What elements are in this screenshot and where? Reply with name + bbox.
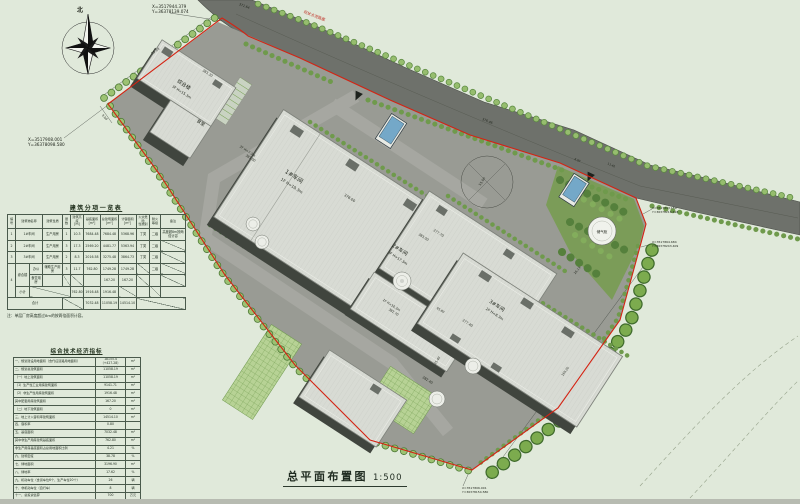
table-cell: 生产用房: [43, 252, 63, 264]
table-cell: 2: [63, 252, 71, 264]
building-list-panel: 建筑分项一览表 8,14,13,20,8,13,17,18,18,13,11,2…: [7, 203, 185, 319]
table-cell: [126, 421, 141, 429]
building-list-note: 注：单层厂房高度超过8m的按两倍面积计容。: [7, 313, 185, 319]
table-cell: 14514.10: [119, 298, 137, 310]
table-cell: 生产用房: [43, 240, 63, 252]
table-cell: 14514.10: [96, 414, 126, 422]
table-cell: [137, 286, 150, 298]
table-cell: 5368.96: [119, 229, 137, 241]
table-cell: m²: [126, 406, 141, 414]
table-header-cell: 基底面积 [m²]: [84, 215, 101, 229]
table-cell: 1749.28: [101, 263, 119, 275]
table-cell: 合计: [8, 298, 63, 310]
table-cell: 4481.77: [101, 240, 119, 252]
bottom-strip: [0, 499, 800, 504]
table-cell: 0: [96, 406, 126, 414]
table-cell: 非生产用房基底面积占总用地面积比例: [14, 445, 96, 453]
table-cell: 1: [63, 229, 71, 241]
table-cell: 17.62: [96, 469, 126, 477]
silo: [246, 217, 260, 231]
table-cell: 3196.90: [96, 461, 126, 469]
table-cell: 167.20: [101, 275, 119, 287]
table-cell: 高度超8m按两倍计容: [161, 229, 186, 241]
table-cell: 762.80: [96, 437, 126, 445]
table-cell: m²: [126, 398, 141, 406]
plan-annotation: Y=36378243.409: [652, 244, 678, 248]
table-cell: m²: [126, 382, 141, 390]
table-header-cell: 层数: [63, 215, 71, 229]
table-cell: [161, 275, 186, 287]
table-cell: 762.80: [84, 263, 101, 275]
table-cell: m²: [126, 437, 141, 445]
table-cell: m²: [126, 366, 141, 374]
table-cell: 丁类: [137, 252, 150, 264]
table-cell: 2569.20: [84, 240, 101, 252]
table-cell: 二、规划总建筑面积: [14, 366, 96, 374]
table-cell: 辆: [126, 477, 141, 485]
table-cell: 七、绿地面积: [14, 461, 96, 469]
table-cell: 3: [63, 263, 71, 275]
table-cell: 11058.19: [96, 366, 126, 374]
table-cell: %: [126, 445, 141, 453]
table-cell: 四、容积率: [14, 421, 96, 429]
drawing-title: 总平面布置图 1:500: [283, 468, 407, 487]
table-cell: 762.80: [71, 286, 84, 298]
table-cell: 丁类: [137, 229, 150, 241]
table-cell: m²: [126, 374, 141, 382]
table-cell: 18155.4（+427.28）: [96, 358, 126, 367]
drawing-scale: 1:500: [373, 473, 403, 483]
table-cell: 3#车间: [16, 252, 43, 264]
table-cell: 综合楼: [16, 263, 30, 286]
plan-annotation: Y=36378139.074: [151, 9, 189, 14]
table-cell: 六、建筑密度: [14, 453, 96, 461]
table-cell: [150, 275, 161, 287]
table-cell: 11058.19: [101, 298, 119, 310]
table-cell: （一）地上建筑面积: [14, 374, 96, 382]
table-cell: 10.3: [71, 229, 84, 241]
table-cell: 3864.73: [119, 252, 137, 264]
table-cell: 1916.48: [84, 286, 101, 298]
table-cell: 丁类: [137, 240, 150, 252]
table-cell: 7032.48: [96, 429, 126, 437]
table-cell: m²: [126, 414, 141, 422]
table-cell: 二级: [150, 240, 161, 252]
table-cell: 11.7: [71, 263, 84, 275]
table-cell: 7684.48: [101, 229, 119, 241]
table-cell: m²: [126, 358, 141, 367]
table-cell: （2）非生产性用房建筑面积: [14, 390, 96, 398]
indicators-title: 综合技术经济指标: [13, 347, 140, 355]
table-cell: [84, 275, 101, 287]
table-cell: 二级: [150, 263, 161, 275]
table-cell: 4.21: [96, 445, 126, 453]
plan-annotation: Y=36378098.580: [27, 142, 65, 147]
table-cell: [43, 275, 63, 287]
table-cell: [161, 240, 186, 252]
table-cell: （二）地下建筑面积: [14, 406, 96, 414]
table-cell: 食堂用房: [30, 275, 43, 287]
table-cell: [119, 286, 137, 298]
table-cell: 3: [8, 252, 16, 264]
table-cell: 9141.71: [96, 382, 126, 390]
table-cell: 8: [96, 485, 126, 493]
building-list-table: 8,14,13,20,8,13,17,18,18,13,11,25 编号建筑物名…: [7, 214, 185, 310]
table-cell: [71, 275, 84, 287]
table-cell: 2016.58: [84, 252, 101, 264]
plan-annotation: 北: [77, 6, 83, 14]
indicators-table: 82,30,15 一、规划建设用地面积（含代征道路用地面积）18155.4（+4…: [13, 357, 140, 504]
table-cell: 17.3: [71, 240, 84, 252]
table-cell: %: [126, 453, 141, 461]
table-cell: %: [126, 469, 141, 477]
table-cell: 3275.48: [101, 252, 119, 264]
table-cell: 7684.48: [84, 229, 101, 241]
plan-annotation: 9.00: [101, 114, 109, 122]
table-cell: 7032.48: [84, 298, 101, 310]
table-cell: 一、规划建设用地面积（含代征道路用地面积）: [14, 358, 96, 367]
table-cell: [137, 298, 186, 310]
table-header-cell: 建筑性质: [43, 215, 63, 229]
table-cell: （1）生产性工业用房建筑面积: [14, 382, 96, 390]
table-header-cell: 备注: [161, 215, 186, 229]
table-cell: 辆: [126, 485, 141, 493]
north-compass: [62, 14, 114, 74]
drawing-title-text: 总平面布置图: [287, 468, 368, 484]
table-cell: 1916.48: [101, 286, 119, 298]
table-header-cell: 编号: [8, 215, 16, 229]
table-cell: [161, 263, 186, 275]
table-cell: 38.78: [96, 453, 126, 461]
parking-grid-1: [222, 324, 301, 419]
silo: [255, 235, 269, 249]
table-cell: 十、非机动车位（自行车）: [14, 485, 96, 493]
building-list-title: 建筑分项一览表: [7, 203, 185, 212]
table-cell: 办公: [30, 263, 43, 275]
table-cell: m²: [126, 390, 141, 398]
table-cell: 3: [63, 240, 71, 252]
table-cell: 三、地上计入容积率建筑面积: [14, 414, 96, 422]
silo: [393, 272, 411, 290]
site-plan-canvas: 北X=3517944.379Y=36378139.074X=3517908.00…: [0, 0, 800, 504]
table-cell: m²: [126, 429, 141, 437]
table-cell: 167.20: [119, 275, 137, 287]
table-cell: 1749.28: [119, 263, 137, 275]
table-cell: 其中配套用房建筑面积: [14, 398, 96, 406]
table-cell: 生产用房: [43, 229, 63, 241]
table-cell: 8.3: [71, 252, 84, 264]
table-cell: 八、绿地率: [14, 469, 96, 477]
table-cell: 五、基底面积: [14, 429, 96, 437]
table-cell: 二级: [150, 229, 161, 241]
table-cell: 小计: [16, 286, 30, 298]
table-cell: 4: [8, 263, 16, 298]
silo: [429, 391, 445, 407]
table-cell: 其中非生产用房建筑基底面积: [14, 437, 96, 445]
table-cell: 2#车间: [16, 240, 43, 252]
table-cell: 26: [96, 477, 126, 485]
table-cell: 1#车间: [16, 229, 43, 241]
table-cell: 辅助生产用房: [43, 263, 63, 275]
plan-annotation: Y=36378154.580: [462, 490, 488, 494]
table-cell: 1: [8, 229, 16, 241]
table-cell: 167.20: [96, 398, 126, 406]
table-header-cell: 建筑高度 [m]: [71, 215, 84, 229]
table-cell: 1916.48: [96, 390, 126, 398]
table-cell: 11058.19: [96, 374, 126, 382]
table-header-cell: 火灾危险 性类别: [137, 215, 150, 229]
table-cell: [137, 263, 150, 275]
table-cell: 0.80: [96, 421, 126, 429]
table-header-cell: 耐火 等级: [150, 215, 161, 229]
table-cell: m²: [126, 461, 141, 469]
table-cell: [161, 252, 186, 264]
table-cell: [137, 275, 150, 287]
table-cell: 5363.94: [119, 240, 137, 252]
table-cell: 二级: [150, 252, 161, 264]
contour-lines: [640, 336, 799, 498]
table-header-cell: 计容面积 [m²]: [119, 215, 137, 229]
table-cell: [63, 275, 71, 287]
table-cell: [150, 286, 161, 298]
table-header-cell: 建筑物名称: [16, 215, 43, 229]
table-cell: 九、机动车位（含货车位6个、生产车位20个）: [14, 477, 96, 485]
table-cell: 2: [8, 240, 16, 252]
plan-annotation: Y=36378216.618: [652, 210, 678, 214]
table-cell: [30, 286, 71, 298]
table-cell: [63, 298, 84, 310]
indicators-panel: 综合技术经济指标 82,30,15 一、规划建设用地面积（含代征道路用地面积）1…: [13, 347, 140, 504]
table-header-cell: 总建筑面积 [m²]: [101, 215, 119, 229]
plan-annotation: 储气柜: [597, 229, 608, 234]
silo: [465, 358, 481, 374]
